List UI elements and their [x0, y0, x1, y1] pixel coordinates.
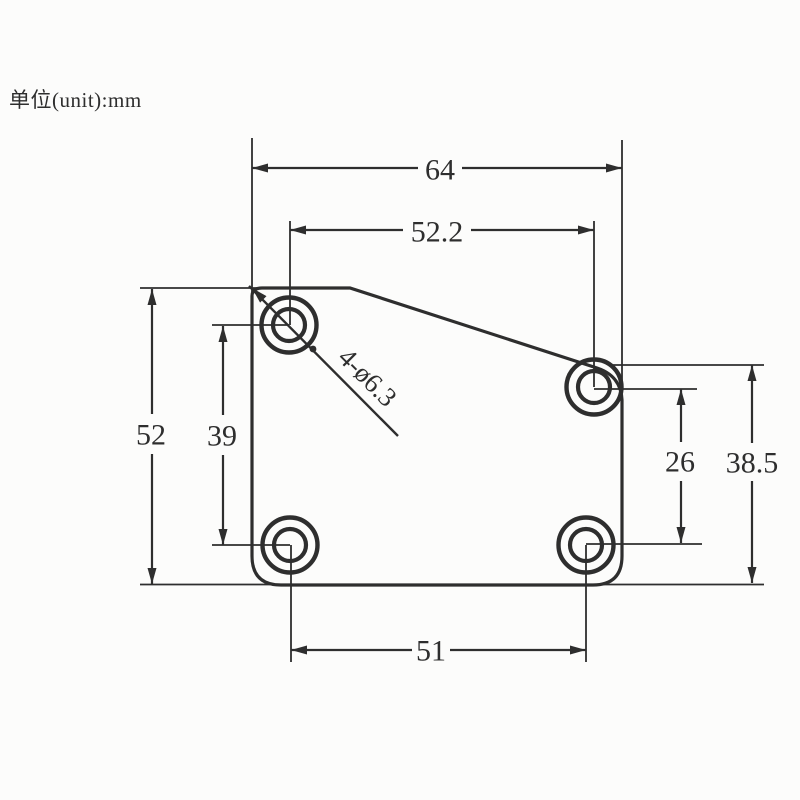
dim-bottom-hole-span-value: 51 [416, 635, 446, 668]
hole-callout-value: 4-ø6.3 [332, 342, 403, 413]
dim-left-hole-span-value: 39 [207, 420, 237, 453]
hole-callout-leader [249, 286, 398, 436]
dim-overall-height-value: 52 [136, 419, 166, 452]
hole-callout-leader-line [249, 286, 398, 436]
dim-overall-width-value: 64 [425, 154, 455, 187]
neck-plate-dimension-drawing: 64 52.2 52 39 26 38.5 51 4-ø6.3 [0, 0, 800, 800]
hole-callout-dot [310, 346, 317, 353]
dim-top-hole-span-value: 52.2 [411, 216, 464, 249]
dim-right-height-value: 38.5 [726, 447, 779, 480]
technical-drawing-page: 单位(unit):mm [0, 0, 800, 800]
dim-right-hole-span-value: 26 [665, 446, 695, 479]
